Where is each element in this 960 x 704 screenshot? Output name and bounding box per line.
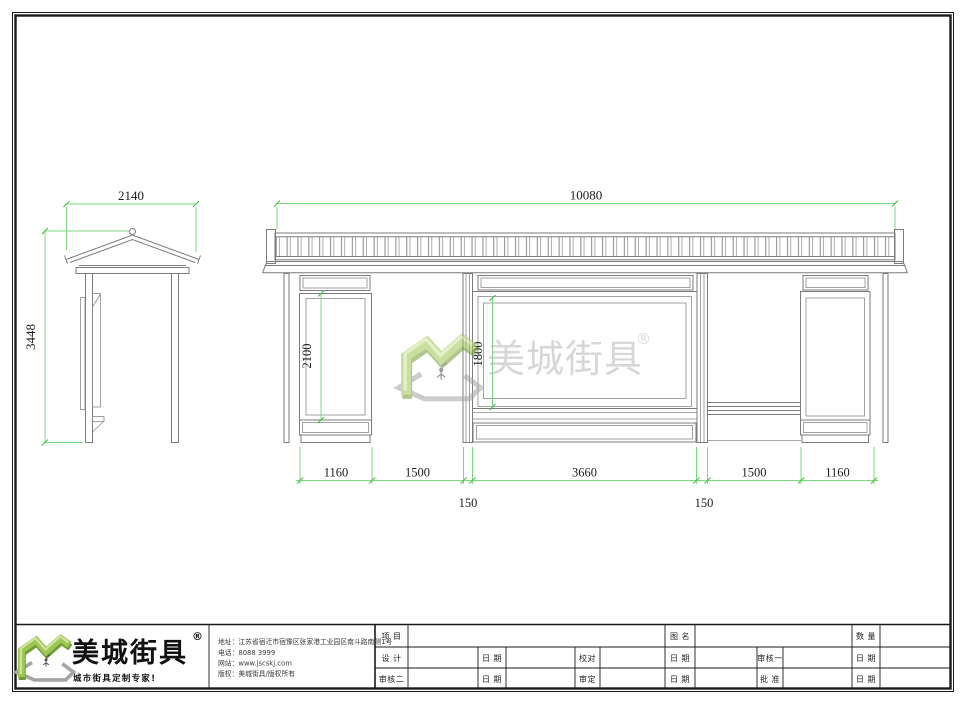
dim-post-150-left: 150 — [459, 496, 478, 510]
post-150-right — [697, 274, 708, 443]
right-lightbox — [801, 276, 871, 443]
dim-left-panel-height: 2100 — [300, 344, 314, 369]
contact-address: 地址：江苏省宿迁市宿豫区张家港工业园区南斗路南侧1号 — [218, 637, 392, 646]
label-quantity: 数 量 — [856, 631, 876, 641]
dim-chain-left-1160: 1160 — [324, 466, 349, 480]
outer-post-right — [883, 274, 888, 443]
side-panel-outer-strip — [81, 298, 86, 410]
label-review1: 审核一 — [757, 653, 783, 663]
side-cornice — [76, 268, 189, 274]
label-check: 校对 — [579, 653, 596, 663]
company-brand: 美城街具 — [72, 637, 188, 669]
side-lightbox-panel — [93, 294, 101, 408]
company-registered-icon: ® — [192, 630, 203, 643]
roof-slope-outer — [66, 235, 199, 260]
title-block: 美城街具 ® 城市街具定制专家! 地址：江苏省宿迁市宿豫区张家港工业园区南斗路南… — [16, 625, 951, 689]
contact-phone: 电话：8088 3999 — [218, 648, 275, 657]
front-cornice — [263, 262, 908, 273]
dim-chain-left-1500: 1500 — [405, 466, 430, 480]
roof-finial — [130, 229, 136, 235]
dim-side-height: 3448 — [23, 324, 38, 350]
side-view-dimensions: 2140 3448 — [23, 188, 199, 446]
contact-website: 网站：www.jscskj.com — [218, 659, 292, 668]
bench-front — [708, 403, 801, 441]
label-review2: 审核二 — [379, 674, 405, 684]
dim-chain-3660: 3660 — [572, 466, 597, 480]
label-date-1: 日 期 — [482, 654, 502, 663]
roof-rib-band — [275, 237, 895, 257]
side-view — [65, 229, 201, 443]
label-ratify: 批 准 — [760, 674, 780, 684]
dim-side-width: 2140 — [118, 188, 144, 203]
dim-chain-right-1500: 1500 — [742, 466, 767, 480]
label-approve: 审定 — [579, 674, 596, 684]
side-post-left — [86, 274, 93, 443]
company-slogan: 城市街具定制专家! — [73, 673, 156, 683]
side-post-right — [172, 274, 179, 443]
watermark-registered-icon: ® — [636, 330, 651, 348]
contact-copyright: 版权：美城街具/版权所有 — [218, 669, 295, 678]
label-date-3: 日 期 — [856, 654, 876, 663]
roof-end-cap-right — [895, 230, 904, 264]
dim-chain-right-1160: 1160 — [825, 466, 850, 480]
company-logo: 美城街具 ® 城市街具定制专家! — [16, 630, 203, 683]
company-logo-icon — [16, 637, 73, 680]
drawing-sheet: 2140 3448 — [0, 0, 960, 704]
label-design: 设 计 — [381, 653, 401, 663]
label-date-6: 日 期 — [856, 675, 876, 684]
label-date-2: 日 期 — [670, 654, 690, 663]
roof-end-cap-left — [267, 230, 276, 264]
watermark-logo-icon — [399, 337, 481, 399]
label-project: 项 目 — [381, 632, 401, 641]
front-view — [263, 230, 908, 443]
watermark: 美城街具 ® — [399, 330, 651, 399]
panel-bracket — [93, 294, 101, 307]
bench-seat-side — [93, 417, 105, 422]
bench-brace-side — [93, 422, 104, 432]
dim-post-150-right: 150 — [695, 496, 714, 510]
label-date-4: 日 期 — [482, 675, 502, 684]
dim-front-total: 10080 — [570, 188, 603, 203]
approval-table: 项 目 图 名 数 量 设 计 日 期 校对 日 期 审核一 日 期 审核二 日… — [375, 625, 951, 689]
label-date-5: 日 期 — [670, 675, 690, 684]
watermark-brand: 美城街具 — [487, 337, 643, 381]
contact-block: 地址：江苏省宿迁市宿豫区张家港工业园区南斗路南侧1号 电话：8088 3999 … — [218, 637, 392, 678]
label-drawing-name: 图 名 — [670, 631, 690, 641]
outer-post-left — [284, 274, 289, 443]
